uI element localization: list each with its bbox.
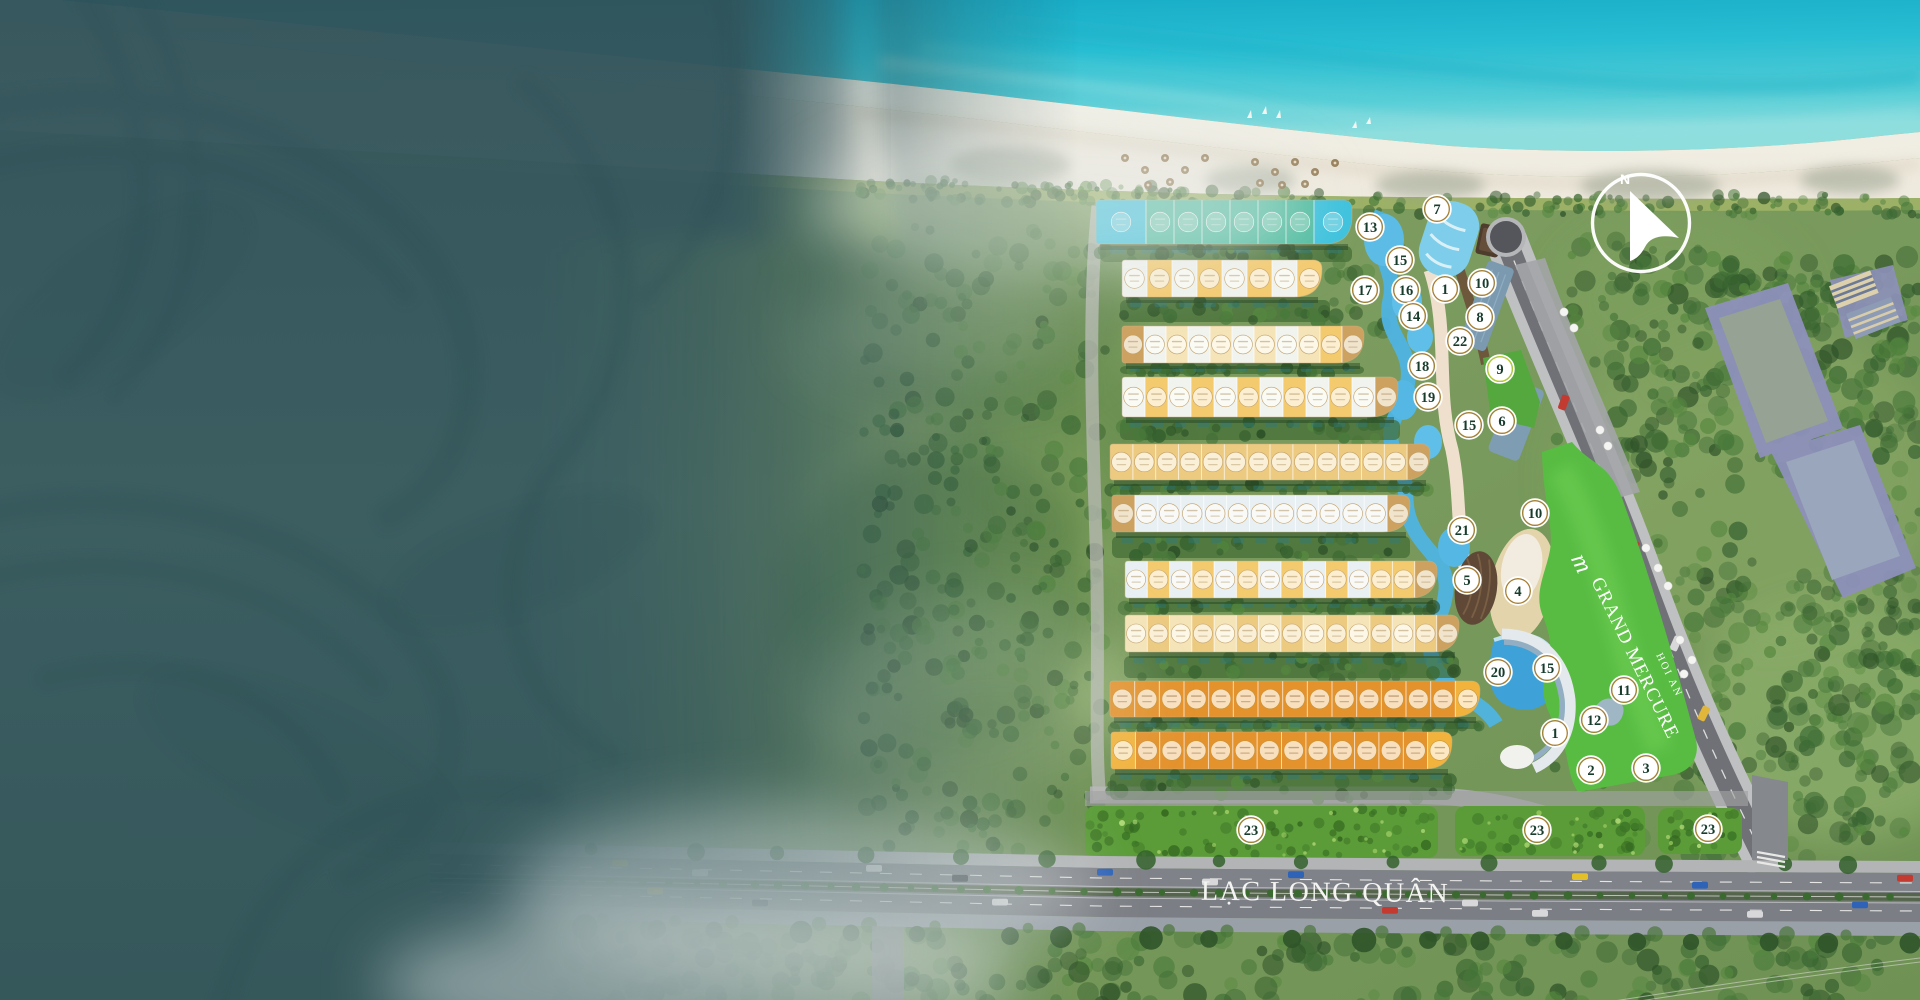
svg-text:10: 10 [1528,506,1543,522]
svg-text:17: 17 [1358,283,1373,299]
svg-text:23: 23 [1244,823,1259,839]
svg-text:5: 5 [1463,573,1470,589]
svg-text:8: 8 [1476,310,1483,326]
svg-text:21: 21 [1455,523,1470,539]
svg-text:13: 13 [1363,220,1378,236]
svg-text:11: 11 [1617,683,1631,699]
svg-text:9: 9 [1496,362,1503,378]
svg-text:15: 15 [1540,661,1555,677]
svg-text:1: 1 [1441,282,1448,298]
svg-text:16: 16 [1399,283,1414,299]
svg-text:15: 15 [1393,253,1408,269]
svg-text:20: 20 [1491,665,1506,681]
svg-text:3: 3 [1642,761,1649,777]
svg-text:N: N [1620,171,1630,187]
svg-text:22: 22 [1453,334,1468,350]
svg-text:7: 7 [1433,202,1440,218]
svg-text:15: 15 [1462,418,1477,434]
svg-text:19: 19 [1421,390,1436,406]
svg-text:23: 23 [1701,822,1716,838]
svg-text:10: 10 [1475,276,1490,292]
svg-text:2: 2 [1587,763,1594,779]
svg-text:14: 14 [1406,309,1421,325]
svg-text:1: 1 [1551,726,1558,742]
svg-text:6: 6 [1498,414,1505,430]
svg-text:18: 18 [1415,359,1430,375]
svg-text:4: 4 [1514,584,1521,600]
svg-text:23: 23 [1530,823,1545,839]
svg-text:12: 12 [1587,713,1602,729]
